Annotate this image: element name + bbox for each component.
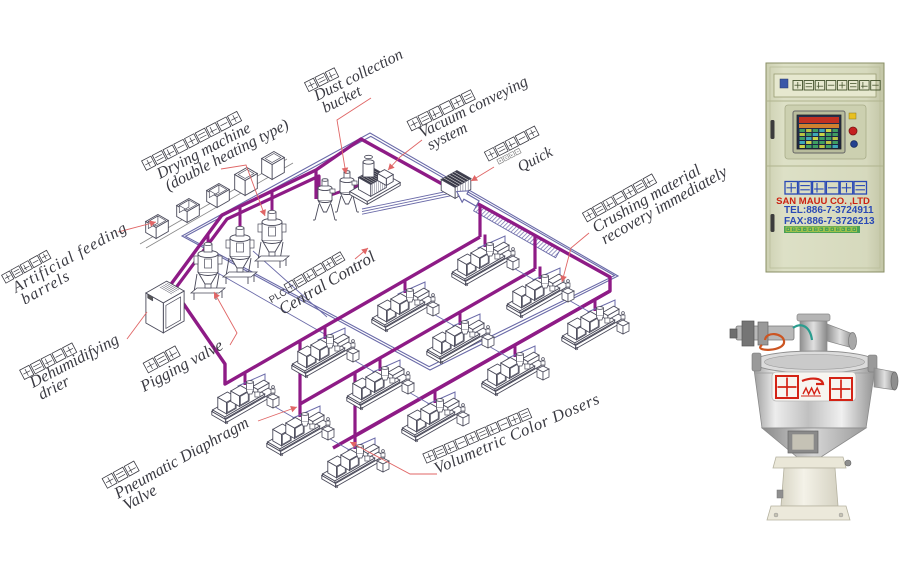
svg-text:TEL:886-7-3724911: TEL:886-7-3724911 xyxy=(784,205,874,216)
svg-text:FAX:886-7-3726213: FAX:886-7-3726213 xyxy=(784,216,875,227)
